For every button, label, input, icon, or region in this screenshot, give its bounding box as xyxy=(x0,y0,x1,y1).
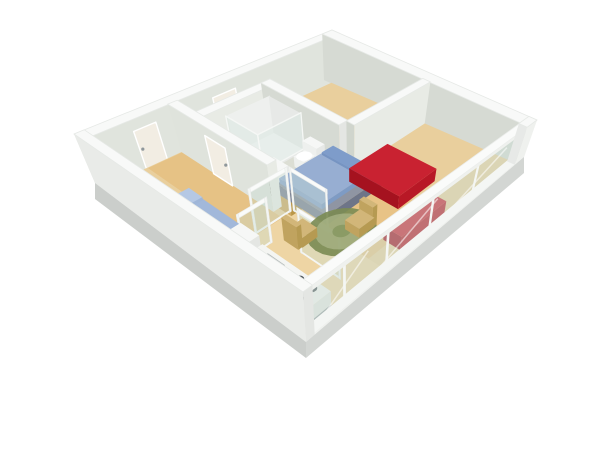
floorplan-3d-render xyxy=(0,0,600,450)
floorplan-svg xyxy=(0,0,600,450)
bathroom-door-handle xyxy=(224,163,227,166)
bedroom-door-handle xyxy=(141,148,144,151)
